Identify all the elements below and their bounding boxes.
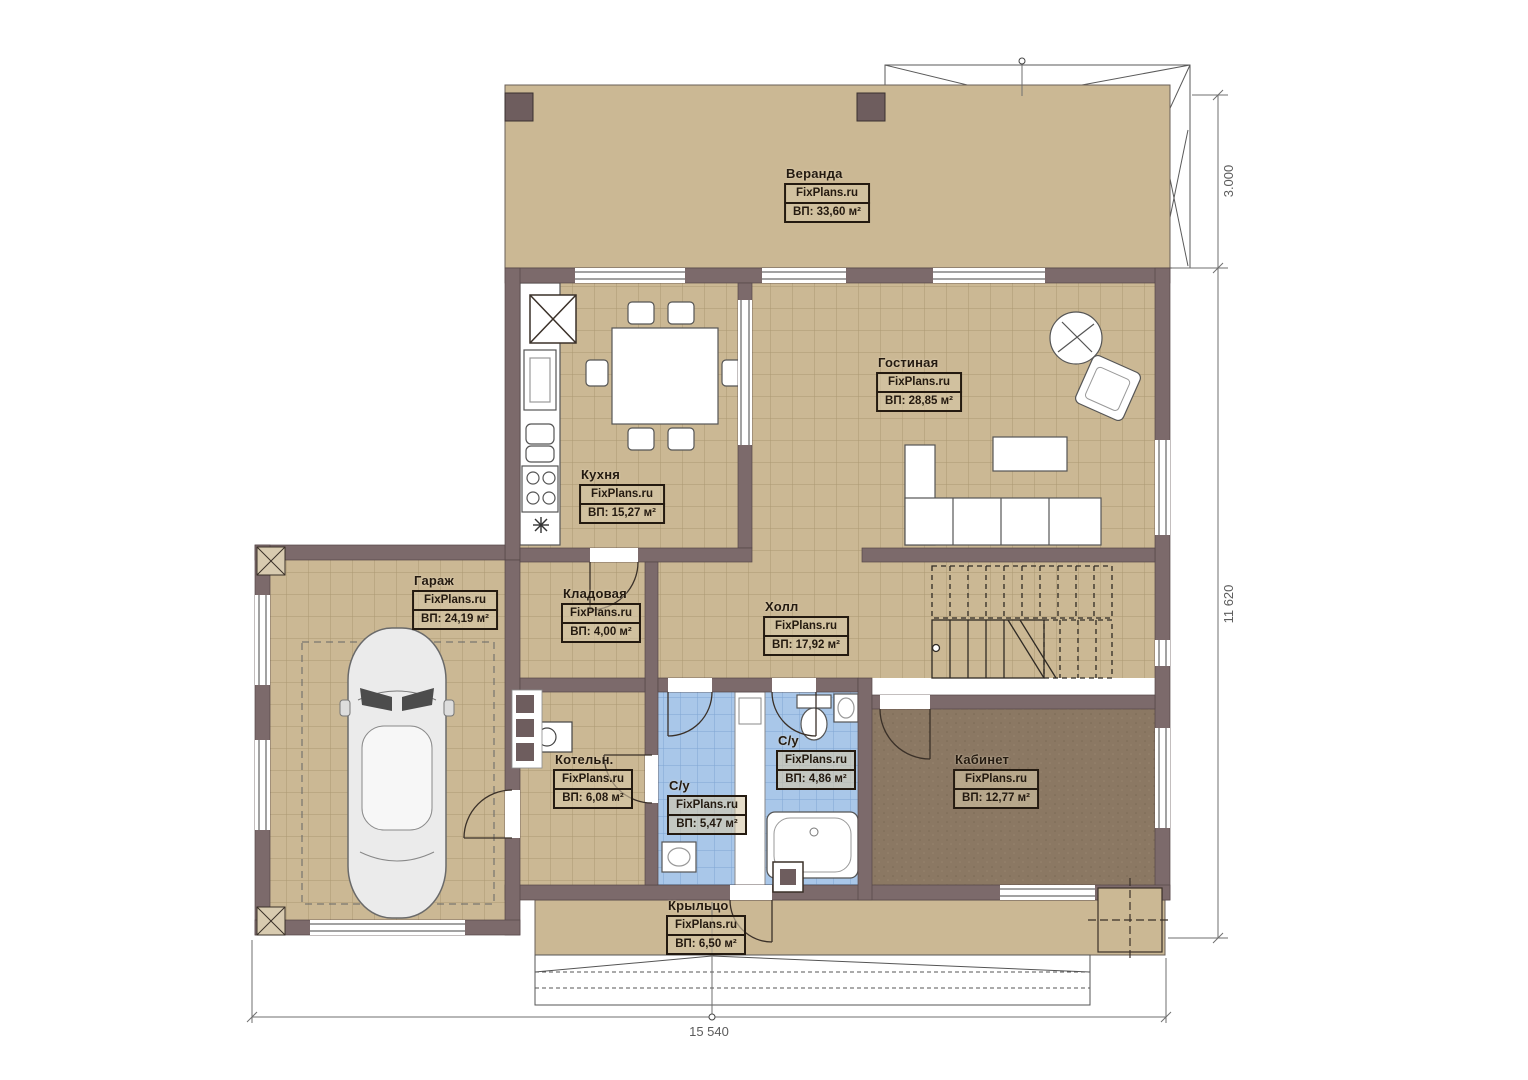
car <box>340 628 454 918</box>
floor-plan-page: 3.000 11 620 15 540 Веранда FixPlans.ru … <box>0 0 1528 1080</box>
porch-post-mark <box>773 862 803 892</box>
chair <box>628 428 654 450</box>
chimney-flues <box>512 690 542 768</box>
stove <box>522 466 558 512</box>
car-roof <box>362 726 432 830</box>
fridge <box>524 350 556 410</box>
chair <box>668 302 694 324</box>
porch-column <box>1088 878 1172 962</box>
veranda-floor <box>505 85 1170 268</box>
storage-floor <box>520 562 645 678</box>
washbasin <box>834 694 858 722</box>
car-mirror <box>444 700 454 716</box>
car-mirror <box>340 700 350 716</box>
coffee-table <box>993 437 1067 471</box>
office-floor <box>872 709 1155 885</box>
chair <box>668 428 694 450</box>
dimension-total-width: 15 540 <box>689 1024 729 1039</box>
chair <box>586 360 608 386</box>
porch-floor <box>535 900 1165 955</box>
chair <box>628 302 654 324</box>
vent-shaft <box>530 295 576 343</box>
dimension-veranda-depth: 3.000 <box>1221 165 1236 198</box>
floor-plan-drawing: 3.000 11 620 15 540 <box>0 0 1528 1080</box>
porch-steps <box>535 955 1090 1005</box>
dimension-total-height: 11 620 <box>1221 585 1236 624</box>
washbasin <box>662 842 696 872</box>
snowflake-icon <box>533 517 549 533</box>
sink <box>526 424 554 462</box>
plumbing-shaft <box>735 692 765 885</box>
